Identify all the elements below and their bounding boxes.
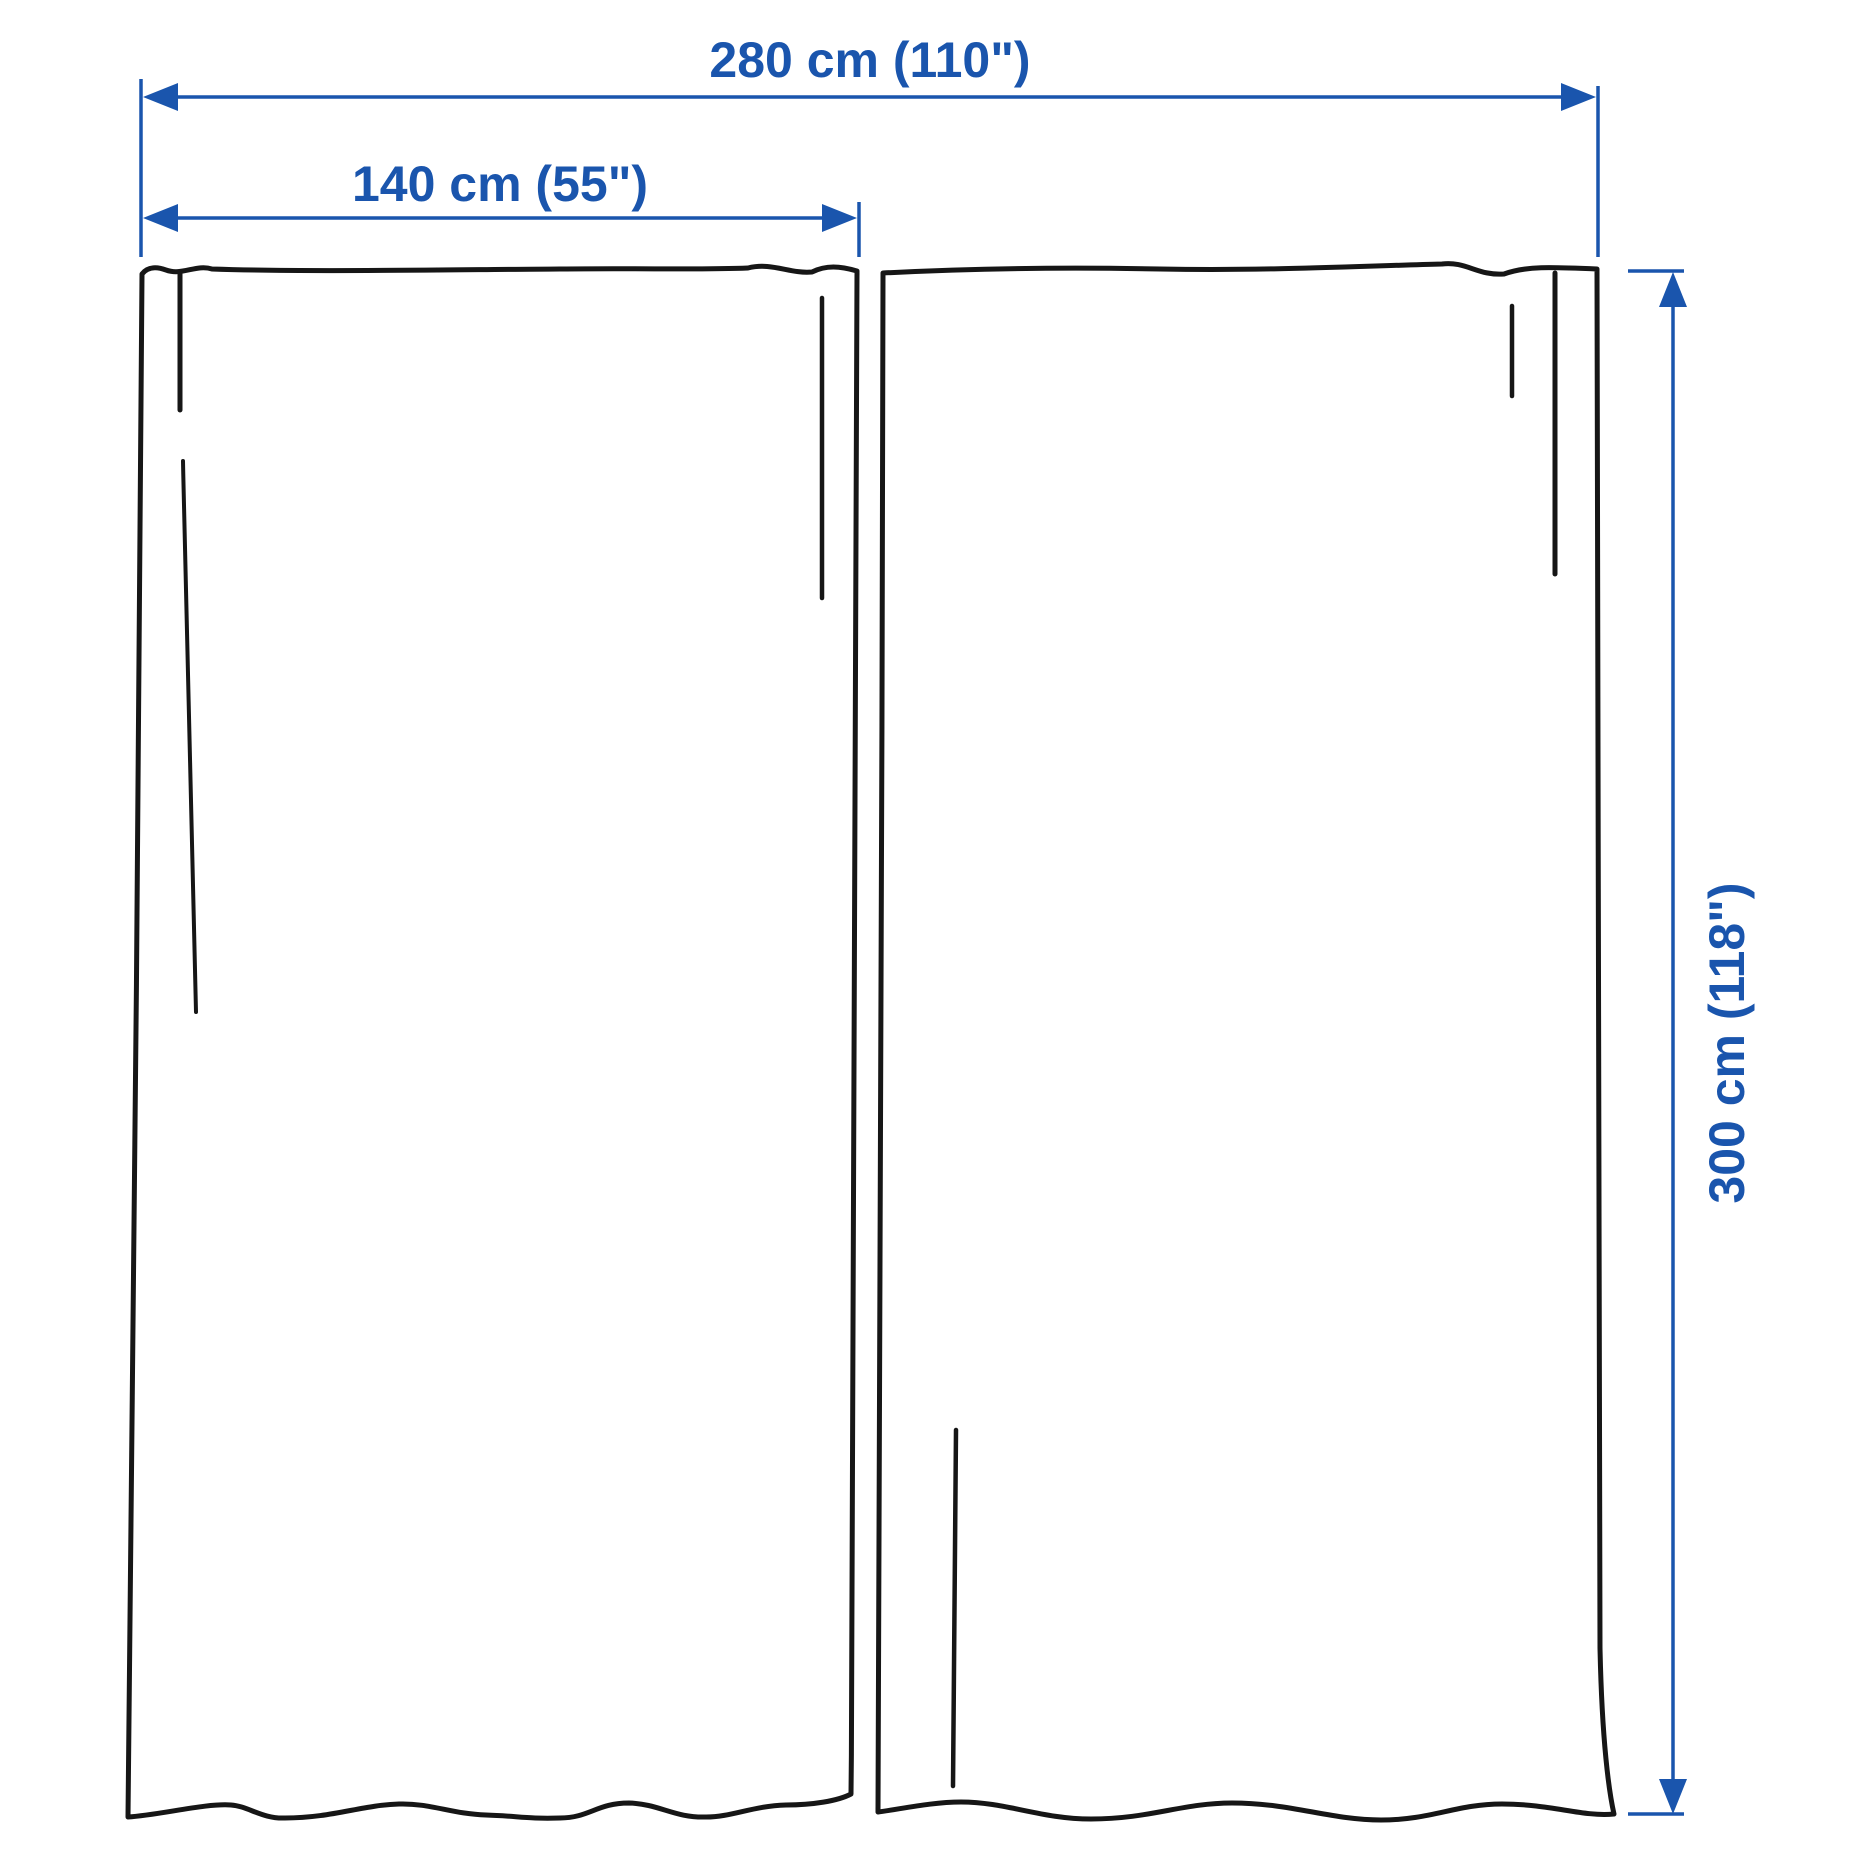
right-panel-fold-line-bottom	[953, 1430, 956, 1786]
diagram-background	[0, 0, 1860, 1860]
total-width-label: 280 cm (110")	[709, 32, 1030, 88]
panel-width-label: 140 cm (55")	[352, 156, 648, 212]
curtain-dimension-diagram: 280 cm (110") 140 cm (55") 300 cm (118")	[0, 0, 1860, 1860]
height-label: 300 cm (118")	[1699, 882, 1755, 1203]
diagram-canvas: 280 cm (110") 140 cm (55") 300 cm (118")	[0, 0, 1860, 1860]
